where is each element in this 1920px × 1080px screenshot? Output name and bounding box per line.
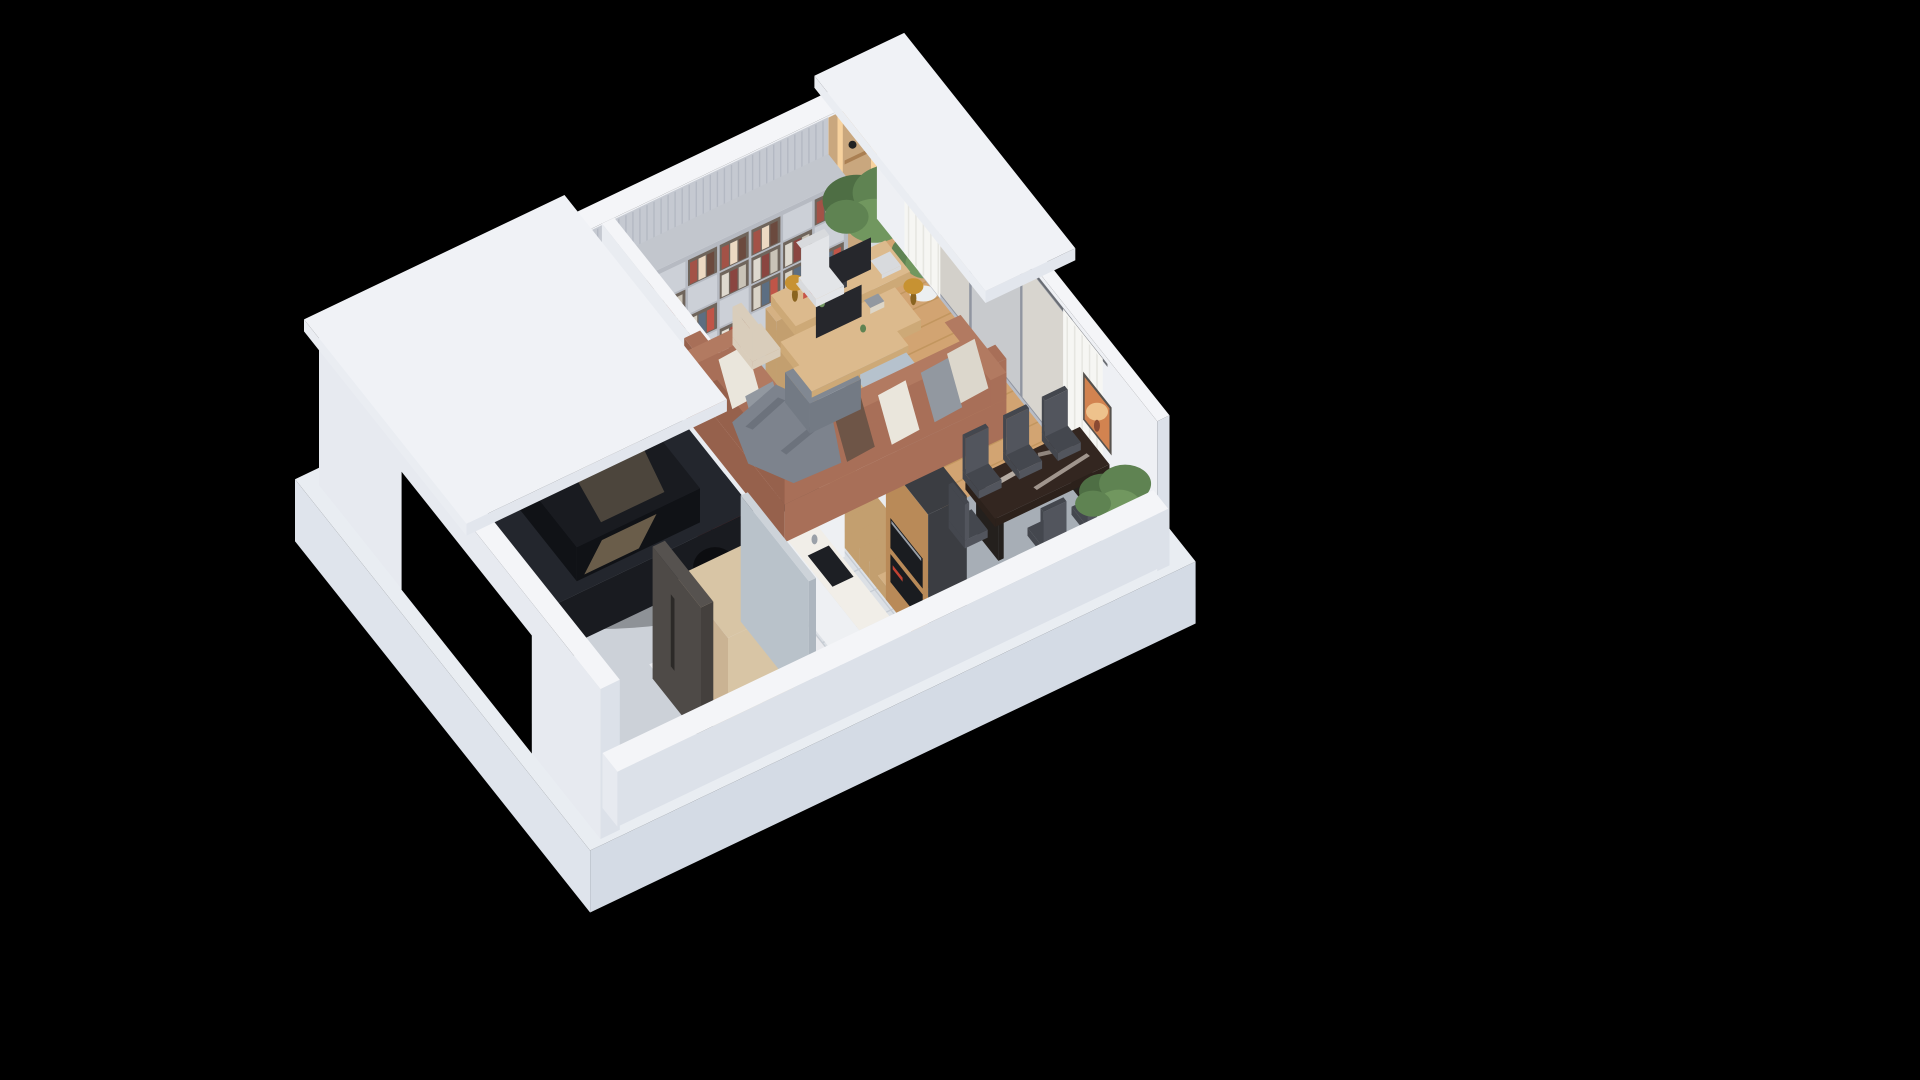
mushroom-lamp [903,278,923,294]
wall-art-figure [1094,420,1100,432]
plant-foliage [825,200,869,234]
wall-art-sun [1086,403,1108,421]
books [707,251,714,276]
floorplan-render: Isometric 3D Floor Plan — Ground Floor C… [0,0,1920,1080]
books [730,268,737,293]
books [753,229,760,254]
books [730,240,737,265]
books [762,225,769,250]
books [739,264,746,289]
books [690,259,697,284]
books [722,244,729,269]
dining-chair-back-south [965,502,969,540]
books [770,221,777,246]
nook-decor-sphere [849,141,857,149]
front-door-handle [671,594,675,671]
books [753,257,760,282]
dining-chair-back-west [1003,415,1006,455]
books [762,253,769,278]
books [707,307,714,332]
books [785,242,792,267]
books [739,236,746,261]
dining-chair-back-west [1042,397,1045,437]
books [722,272,729,297]
books [699,255,706,280]
books [753,285,760,310]
dining-chair-back-west [1041,508,1044,548]
books [762,281,769,306]
plant-foliage [1075,491,1111,517]
beige-chair-back-south [752,328,761,362]
dining-chair-back-west [963,435,966,475]
kitchen-faucet [812,534,818,544]
isometric-scene [0,0,1920,1080]
books [770,249,777,274]
desk-cactus [860,325,866,333]
